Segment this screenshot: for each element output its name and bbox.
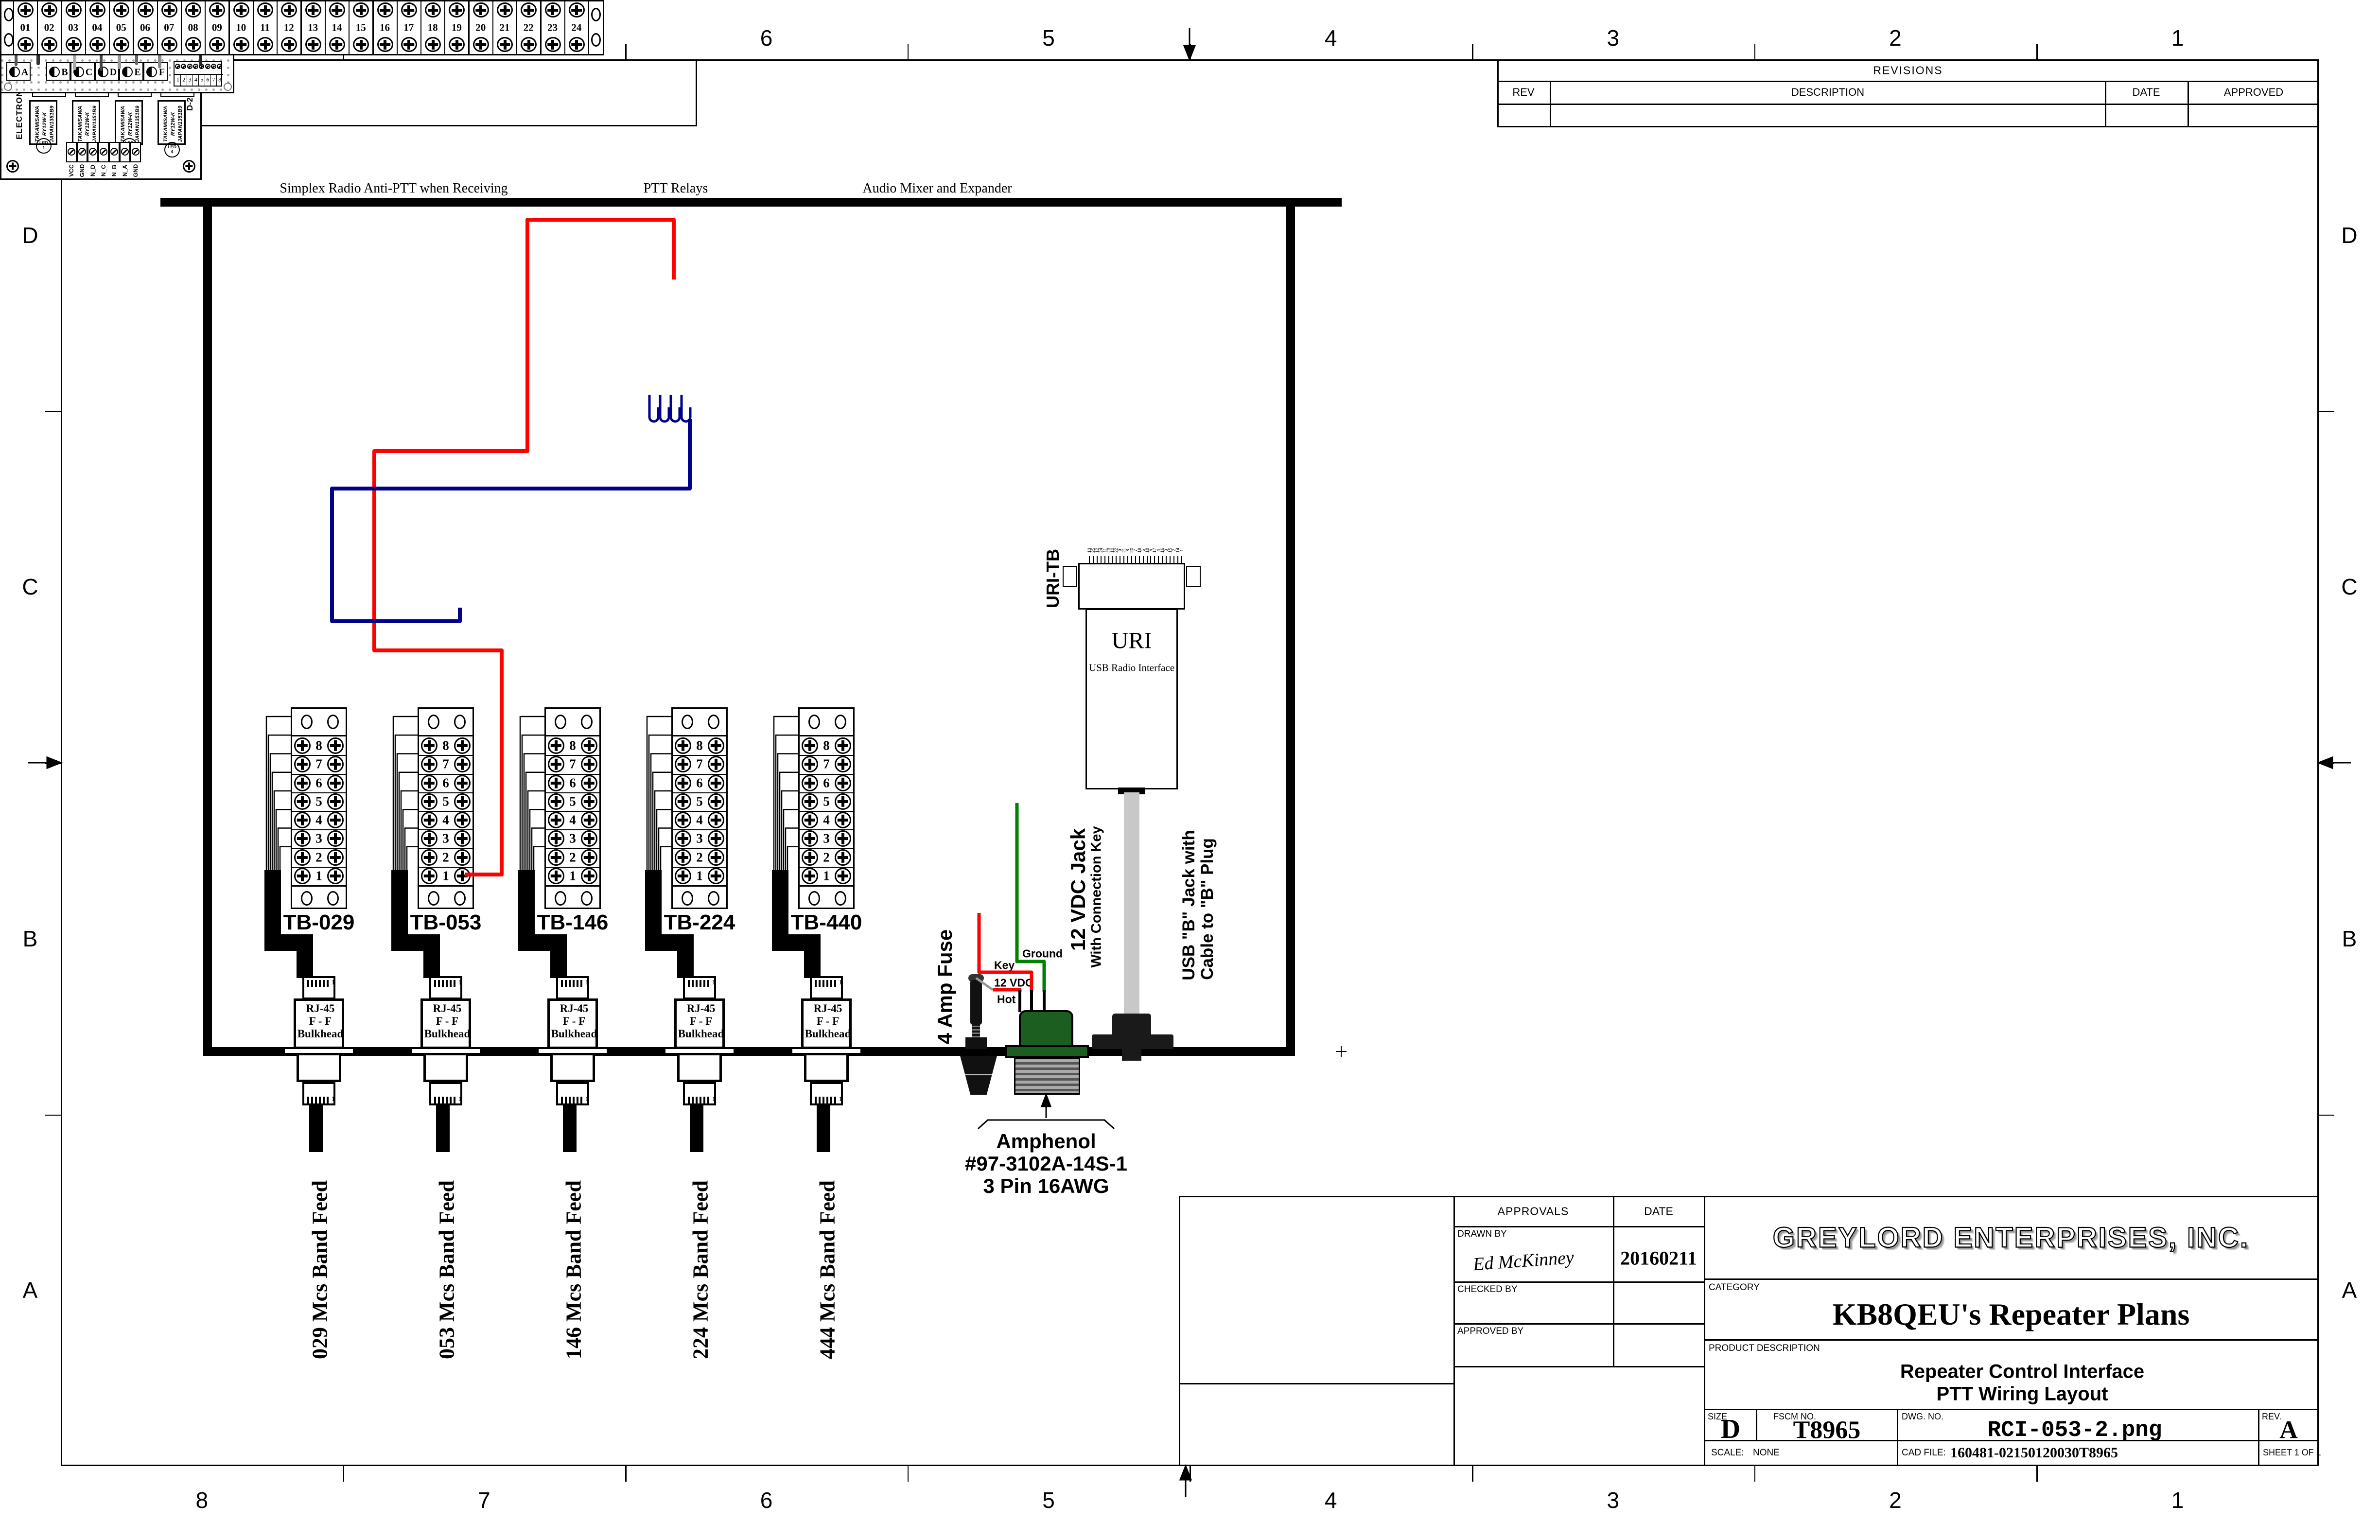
rj45-bulkhead-text: F - F <box>690 1015 712 1028</box>
db25-pin <box>1135 556 1136 563</box>
terminal-screw-icon <box>132 148 140 156</box>
feed-label: 444 Mcs Band Feed <box>815 1180 840 1359</box>
caption-simplex: Simplex Radio Anti-PTT when Receiving <box>280 181 507 196</box>
rev-label: REV. <box>2262 1412 2281 1422</box>
uri-tb-terminal: 10 <box>229 1 254 54</box>
rj45-plug-pins <box>434 980 457 987</box>
terminal-screw-icon <box>305 2 321 17</box>
power-terminal-label: N_D <box>89 165 96 176</box>
terminal-screw-icon <box>327 849 344 866</box>
power-terminal-label: GND <box>79 164 86 177</box>
terminal-screw-icon <box>78 148 86 156</box>
terminal-screw-icon <box>802 812 818 828</box>
db25-pin <box>1116 556 1117 563</box>
rj45-plug: 1 <box>429 1082 462 1105</box>
corner-screw-icon <box>6 160 19 173</box>
rj45-bulkhead-text: Bulkhead <box>297 1028 344 1040</box>
terminal-number: 19 <box>452 22 462 34</box>
zone-number-bottom: 5 <box>1042 1487 1055 1513</box>
tb-cable <box>677 934 694 978</box>
db25-pin <box>1104 556 1105 563</box>
cell-divider <box>198 75 199 86</box>
terminal-screw-icon <box>548 737 564 754</box>
terminal-screw-icon <box>294 737 311 754</box>
uri-tb-terminal: 14 <box>325 1 350 54</box>
tb-cable <box>804 934 821 978</box>
zone-letter-right: A <box>2342 1277 2357 1303</box>
terminal-screw-icon <box>548 793 564 810</box>
terminal-screw-icon <box>548 756 564 772</box>
amphenol-callout-1: Amphenol <box>996 1130 1096 1153</box>
mounting-hole <box>555 891 566 906</box>
terminal-number: 15 <box>356 22 366 34</box>
terminal-pin-number: 4 <box>194 76 197 84</box>
led-number: 4 <box>165 150 179 155</box>
drawing-frame <box>61 59 2319 1466</box>
zone-tick <box>2036 44 2038 59</box>
terminal-number: 8 <box>442 738 449 753</box>
vdc-jack-label-1: 12 VDC Jack <box>1067 828 1090 951</box>
terminal-screw-icon <box>121 148 129 156</box>
db25-side-screw <box>1063 566 1077 587</box>
mounting-hole <box>581 891 593 906</box>
db25-pin <box>1089 556 1090 563</box>
terminal-screw-icon <box>545 2 561 17</box>
terminal-screw-icon <box>581 812 597 828</box>
mounting-hole <box>454 891 466 906</box>
tb-label: TB-440 <box>791 910 862 935</box>
terminal-screw-icon <box>353 37 369 52</box>
pot-label: B <box>61 67 68 78</box>
cell-divider <box>180 75 181 86</box>
mounting-hole <box>428 891 439 906</box>
terminal-screw-icon <box>327 756 344 772</box>
mounting-hole <box>301 715 313 729</box>
rj45-bulkhead-lower <box>297 1053 341 1082</box>
rj45-pin1-label: 1 <box>712 1096 716 1103</box>
zone-tick <box>45 411 61 413</box>
terminal-screw-icon <box>473 2 489 17</box>
terminal-screw-icon <box>581 775 597 791</box>
feed-cable <box>563 1105 577 1152</box>
relay-text: TAKAMISAWA <box>163 106 169 142</box>
mounting-hole <box>808 715 820 729</box>
terminal-number: 06 <box>140 22 150 34</box>
tb-label: TB-053 <box>410 910 482 935</box>
rj45-plug-pins <box>434 1097 457 1103</box>
uri-tb-terminal: 04 <box>85 1 110 54</box>
zone-tick <box>1472 44 1473 59</box>
db25-pin <box>1170 556 1171 563</box>
power-terminal-label: N_A <box>122 165 128 176</box>
led-indicator: LED1 <box>36 138 52 154</box>
revisions-col-description: DESCRIPTION <box>1791 86 1864 99</box>
enclosure-left-wall <box>203 207 212 1056</box>
approved-by-label: APPROVED BY <box>1457 1326 1523 1337</box>
relay-text: JAPAN1351B9 <box>177 105 183 142</box>
rj45-pin1-label: 1 <box>458 979 462 987</box>
rj45-bulkhead-text: F - F <box>309 1015 332 1028</box>
terminal-screw-icon <box>138 37 154 52</box>
uri-tb-terminal: 21 <box>492 1 517 54</box>
terminal-screw-icon <box>211 64 216 69</box>
uri-tb-terminal: 03 <box>61 1 86 54</box>
terminal-screw-icon <box>675 793 691 810</box>
terminal-screw-icon <box>835 849 851 866</box>
power-terminal-label: VCC <box>68 164 75 176</box>
rj45-bulkhead-lower <box>550 1053 595 1082</box>
zone-tick <box>2319 411 2334 413</box>
terminal-screw-icon <box>209 37 225 52</box>
terminal-number: 2 <box>315 850 322 865</box>
product-line-2: PTT Wiring Layout <box>1937 1383 2108 1405</box>
terminal-screw-icon <box>802 849 818 866</box>
db25-side-screw <box>1186 566 1201 587</box>
ground-wire-label: Ground <box>1021 947 1064 961</box>
terminal-screw-icon <box>708 793 724 810</box>
terminal-screw-icon <box>675 756 691 772</box>
db25-pin <box>1177 556 1178 563</box>
uri-tb-terminal: 01 <box>13 1 38 54</box>
terminal-screw-icon <box>708 756 724 772</box>
tb-label: TB-224 <box>664 910 735 935</box>
terminal-screw-icon <box>217 64 222 69</box>
terminal-screw-icon <box>708 775 724 791</box>
strip-divider <box>419 885 472 887</box>
terminal-screw-icon <box>100 148 107 156</box>
rj45-bulkhead: RJ-45F - FBulkhead <box>547 998 598 1049</box>
db25-pin-number: 1 <box>1179 549 1184 551</box>
strip-divider <box>800 885 853 887</box>
strip-divider <box>546 735 599 736</box>
zone-number-top: 5 <box>1042 25 1055 51</box>
rj45-bulkhead-text: F - F <box>817 1015 839 1028</box>
terminal-screw-icon <box>209 2 225 17</box>
pot-label: D <box>110 67 117 78</box>
terminal-number: 5 <box>315 794 322 809</box>
terminal-number: 24 <box>571 22 581 34</box>
uri-tb-terminal: 19 <box>444 1 469 54</box>
mounting-hole <box>428 715 439 729</box>
terminal-screw-icon <box>377 37 393 52</box>
terminal-screw-icon <box>425 37 441 52</box>
pot-label: C <box>86 67 92 78</box>
zone-tick <box>2319 763 2334 764</box>
terminal-number: 4 <box>569 813 576 828</box>
terminal-number: 3 <box>823 831 830 846</box>
terminal-screw-icon <box>327 812 344 828</box>
tb-terminal-block: 87654321 <box>798 707 855 909</box>
terminal-screw-icon <box>294 868 311 884</box>
terminal-number: 05 <box>116 22 126 34</box>
corner-screw-icon <box>183 160 195 173</box>
terminal-screw-icon <box>454 756 471 772</box>
rj45-bulkhead-text: Bulkhead <box>805 1028 851 1040</box>
terminal-screw-icon <box>68 148 75 156</box>
rj45-bulkhead-lower <box>423 1053 468 1082</box>
pot-label: F <box>159 67 165 78</box>
terminal-number: 5 <box>569 794 576 809</box>
dwg-value: RCI-053-2.png <box>1988 1417 2162 1443</box>
terminal-screw-icon <box>835 756 851 772</box>
feed-label: 029 Mcs Band Feed <box>308 1180 332 1359</box>
terminal-screw-icon <box>675 868 691 884</box>
uri-tb-terminal: 13 <box>301 1 326 54</box>
terminal-number: 1 <box>569 868 576 883</box>
terminal-screw-icon <box>835 775 851 791</box>
rj45-pin1-label: 1 <box>585 1096 589 1103</box>
terminal-screw-icon <box>581 793 597 810</box>
terminal-number: 7 <box>823 757 830 772</box>
pot-rotor-icon <box>146 67 157 77</box>
terminal-screw-icon <box>708 737 724 754</box>
rj45-plug: 1 <box>810 1082 843 1105</box>
rev-value: A <box>2279 1416 2298 1445</box>
company-logo: GREYLORD ENTERPRISES, INC. <box>1773 1222 2249 1254</box>
zone-letter-right: B <box>2342 926 2357 952</box>
power-terminal-label: N_B <box>111 165 118 176</box>
zone-number-bottom: 3 <box>1607 1487 1620 1513</box>
terminal-number: 17 <box>403 22 414 34</box>
terminal-number: 7 <box>569 757 576 772</box>
zone-number-top: 6 <box>760 25 773 51</box>
pot-label: A <box>21 67 28 78</box>
drawing-sheet: 8877665544332211DDCCBBAA REVISIONS REV D… <box>0 0 2380 1540</box>
db25-pin <box>1162 556 1163 563</box>
terminal-screw-icon <box>233 37 249 52</box>
dwg-label: DWG. NO. <box>1902 1412 1943 1422</box>
db25-pin <box>1123 556 1124 563</box>
terminal-screw-icon <box>421 849 437 866</box>
strip-divider <box>292 735 346 736</box>
terminal-screw-icon <box>708 812 724 828</box>
rj45-plug: 1 <box>556 976 589 999</box>
terminal-screw-icon <box>548 830 564 847</box>
terminal-screw-icon <box>835 812 851 828</box>
uri-tb-terminal: 17 <box>397 1 421 54</box>
terminal-screw-icon <box>327 793 344 810</box>
relay-component: TAKAMISAWARY12W-KJAPAN1351B9 <box>157 100 186 145</box>
terminal-screw-icon <box>66 2 82 17</box>
power-terminal-label: N_C <box>100 165 107 176</box>
screw-terminal-block: 12345678 <box>174 61 222 87</box>
terminal-screw-icon <box>421 868 437 884</box>
terminal-number: 1 <box>823 868 830 883</box>
terminal-number: 8 <box>569 738 576 753</box>
led-number: 1 <box>37 146 51 151</box>
row-divider <box>800 774 853 775</box>
terminal-screw-icon <box>675 775 691 791</box>
db25-pin <box>1101 556 1102 563</box>
zone-tick <box>1754 44 1756 59</box>
terminal-screw-icon <box>113 2 129 17</box>
terminal-screw-icon <box>497 37 513 52</box>
terminal-screw-icon <box>802 868 818 884</box>
rj45-plug-pins <box>561 1097 584 1103</box>
caption-audio-mixer: Audio Mixer and Expander <box>862 181 1012 196</box>
terminal-number: 3 <box>696 831 703 846</box>
uri-tb-terminal: 02 <box>37 1 62 54</box>
terminal-number: 12 <box>284 22 294 34</box>
terminal-screw-icon <box>294 849 311 866</box>
strip-divider <box>800 735 853 736</box>
zone-tick <box>1190 44 1191 59</box>
zone-number-bottom: 7 <box>478 1487 490 1513</box>
terminal-screw-icon <box>548 812 564 828</box>
strip-divider <box>673 885 726 887</box>
uri-tb-terminal: 05 <box>109 1 134 54</box>
uri-tb-terminal: 12 <box>277 1 301 54</box>
hot-wire-label: Hot <box>996 993 1017 1006</box>
rj45-bulkhead-text: RJ-45 <box>306 1002 335 1015</box>
terminal-screw-icon <box>187 64 192 69</box>
zone-tick <box>908 44 909 59</box>
revisions-col-approved: APPROVED <box>2224 86 2283 99</box>
drawn-by-label: DRAWN BY <box>1457 1229 1507 1240</box>
uri-title: URI <box>1112 628 1152 654</box>
terminal-number: 2 <box>823 850 830 865</box>
relay-text: JAPAN1351B9 <box>135 105 140 142</box>
rj45-pin1-label: 1 <box>332 1096 335 1103</box>
terminal-screw-icon <box>835 830 851 847</box>
terminal-number: 2 <box>696 850 703 865</box>
fscm-value: T8965 <box>1793 1416 1861 1445</box>
terminal-screw-icon <box>327 868 344 884</box>
pot-rotor-icon <box>49 67 60 77</box>
strip-divider <box>673 735 726 736</box>
terminal-screw-icon <box>581 756 597 772</box>
db25-pin <box>1150 556 1151 563</box>
trim-pot: A <box>6 62 31 81</box>
usb-jack-label-1: USB "B" Jack with <box>1179 830 1199 980</box>
rj45-plug: 1 <box>302 1082 335 1105</box>
terminal-screw-icon <box>421 737 437 754</box>
rj45-plug-pins <box>307 1097 331 1103</box>
terminal-number: 6 <box>569 775 576 790</box>
db25-pin <box>1158 556 1159 563</box>
trim-pot: B <box>46 62 70 81</box>
terminal-screw-icon <box>41 37 57 52</box>
row-divider <box>673 774 726 775</box>
uri-tb-terminal: 08 <box>181 1 206 54</box>
rj45-plug-pins <box>307 980 331 987</box>
terminal-screw-icon <box>401 2 417 17</box>
terminal-number: 4 <box>696 813 703 828</box>
rj45-bulkhead-text: RJ-45 <box>814 1002 842 1015</box>
cell-divider <box>210 75 211 86</box>
feed-label: 224 Mcs Band Feed <box>688 1180 713 1359</box>
terminal-screw-icon <box>305 37 321 52</box>
terminal-screw-icon <box>401 37 417 52</box>
uri-tb-terminal: 24 <box>564 1 589 54</box>
terminal-pin-number: 3 <box>189 76 192 84</box>
terminal-pin-number: 8 <box>218 76 221 84</box>
cell-divider <box>187 75 187 86</box>
terminal-number: 1 <box>315 868 322 883</box>
rj45-plug: 1 <box>302 976 335 999</box>
cad-file-label: CAD FILE: <box>1902 1448 1946 1458</box>
revisions-col-rev: REV <box>1512 86 1534 99</box>
terminal-screw-icon <box>281 2 297 17</box>
mounting-hole <box>835 891 846 906</box>
terminal-screw-icon <box>454 775 471 791</box>
rj45-plug-pins <box>561 980 584 987</box>
uri-tb-terminal: 16 <box>373 1 398 54</box>
terminal-screw-icon <box>454 812 471 828</box>
approvals-header: APPROVALS <box>1498 1205 1569 1218</box>
terminal-number: 8 <box>315 738 322 753</box>
tb-terminal-block: 87654321 <box>544 707 601 909</box>
vdc-jack-label-2: With Connection Key <box>1089 826 1105 967</box>
terminal-number: 13 <box>308 22 318 34</box>
feed-cable <box>309 1105 323 1152</box>
terminal-screw-icon <box>233 2 249 17</box>
terminal-number: 8 <box>696 738 703 753</box>
terminal-screw-icon <box>449 37 465 52</box>
terminal-screw-icon <box>138 2 154 17</box>
zone-number-bottom: 8 <box>196 1487 209 1513</box>
terminal-screw-icon <box>835 868 851 884</box>
zone-number-top: 4 <box>1325 25 1337 51</box>
terminal-screw-icon <box>257 2 273 17</box>
db25-pin <box>1108 556 1109 563</box>
zone-number-bottom: 6 <box>760 1487 773 1513</box>
terminal-number: 8 <box>823 738 830 753</box>
relay-text: JAPAN1351B9 <box>49 105 55 142</box>
uri-tb-terminal: 09 <box>205 1 229 54</box>
category-label: CATEGORY <box>1709 1282 1760 1293</box>
tb-terminal-block: 87654321 <box>671 707 728 909</box>
tb-cable <box>297 934 313 978</box>
terminal-screw-icon <box>377 2 393 17</box>
terminal-screw-icon <box>708 830 724 847</box>
terminal-screw-icon <box>581 868 597 884</box>
terminal-screw-icon <box>185 2 201 17</box>
terminal-number: 5 <box>823 794 830 809</box>
terminal-number: 03 <box>68 22 78 34</box>
terminal-screw-icon <box>329 37 345 52</box>
relay-text: RY12W-K <box>127 112 133 136</box>
product-description-label: PRODUCT DESCRIPTION <box>1709 1343 1820 1354</box>
terminal-pin-number: 7 <box>212 76 215 84</box>
zone-letter-right: C <box>2341 574 2357 600</box>
zone-letter-left: A <box>23 1277 38 1303</box>
terminal-screw-icon <box>89 2 105 17</box>
rj45-bulkhead: RJ-45F - FBulkhead <box>294 998 344 1049</box>
terminal-number: 14 <box>332 22 342 34</box>
rj45-plug-pins <box>815 980 838 987</box>
rj45-bulkhead-text: RJ-45 <box>560 1002 589 1015</box>
uri-tb-terminal: 07 <box>157 1 182 54</box>
zone-number-bottom: 1 <box>2171 1487 2184 1513</box>
trim-pot: F <box>143 62 168 81</box>
zone-tick <box>45 1115 61 1116</box>
terminal-number: 1 <box>442 868 449 883</box>
terminal-screw-icon <box>421 812 437 828</box>
mounting-hole <box>682 715 693 729</box>
db25-pin <box>1181 556 1182 563</box>
row-divider <box>419 774 472 775</box>
terminal-screw-icon <box>281 37 297 52</box>
mounting-hole <box>224 83 232 91</box>
category-title: KB8QEU's Repeater Plans <box>1833 1296 2190 1332</box>
terminal-screw-icon <box>569 37 585 52</box>
terminal-number: 09 <box>212 22 222 34</box>
uri-tb-terminal: 23 <box>541 1 565 54</box>
terminal-number: 2 <box>569 850 576 865</box>
mounting-hole <box>4 83 12 91</box>
terminal-number: 7 <box>442 757 449 772</box>
